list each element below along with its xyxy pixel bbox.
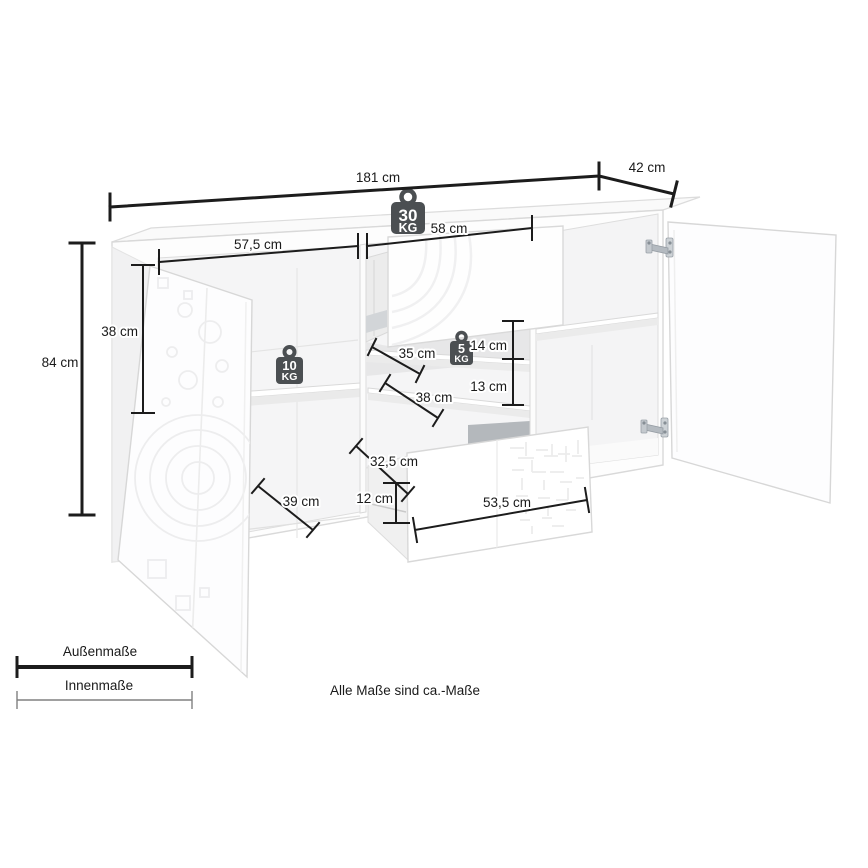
dimension-total-width-label: 181 cm [356,170,400,185]
dimension-bottom-compartment-depth-label: 39 cm [283,494,320,509]
right-door-panel [668,222,836,503]
dimension-lower-compartment-height-label: 13 cm [470,379,507,394]
divider-left [360,244,366,513]
dimension-depth-label: 42 cm [629,160,666,175]
dimension-drawer-inner-height-label: 12 cm [356,491,393,506]
load-middle-unit: KG [454,354,468,365]
dimension-total-height: 84 cm [42,243,94,515]
dimension-left-compartment-width-label: 57,5 cm [234,237,282,252]
load-badge-top: 30 KG [391,191,425,236]
weight-icon [402,191,415,204]
dimension-door-inner-height-label: 38 cm [101,324,138,339]
right-door [668,222,836,503]
footnote: Alle Maße sind ca.-Maße [330,683,480,698]
dimension-upper-shelf-depth-label: 35 cm [399,346,436,361]
legend-inner-label: Innenmaße [65,678,133,693]
dimension-drawer-inner-depth-label: 32,5 cm [370,454,418,469]
dimension-diagram: 30 KG 10 KG 5 KG 181 cm 42 cm 84 cm 38 c… [0,0,868,868]
load-top-unit: KG [399,221,418,235]
legend: Außenmaße Innenmaße [17,644,192,709]
dimension-upper-compartment-height-label: 14 cm [470,338,507,353]
top-drawer-front [388,226,563,347]
dimension-total-height-label: 84 cm [42,355,79,370]
load-left-unit: KG [282,371,298,383]
legend-outer-label: Außenmaße [63,644,137,659]
dimension-lower-shelf-depth-label: 38 cm [416,390,453,405]
dimension-middle-compartment-width-label: 58 cm [431,221,468,236]
dimension-drawer-front-width-label: 53,5 cm [483,495,531,510]
sideboard-illustration [112,197,836,677]
top-drawer [366,226,563,347]
